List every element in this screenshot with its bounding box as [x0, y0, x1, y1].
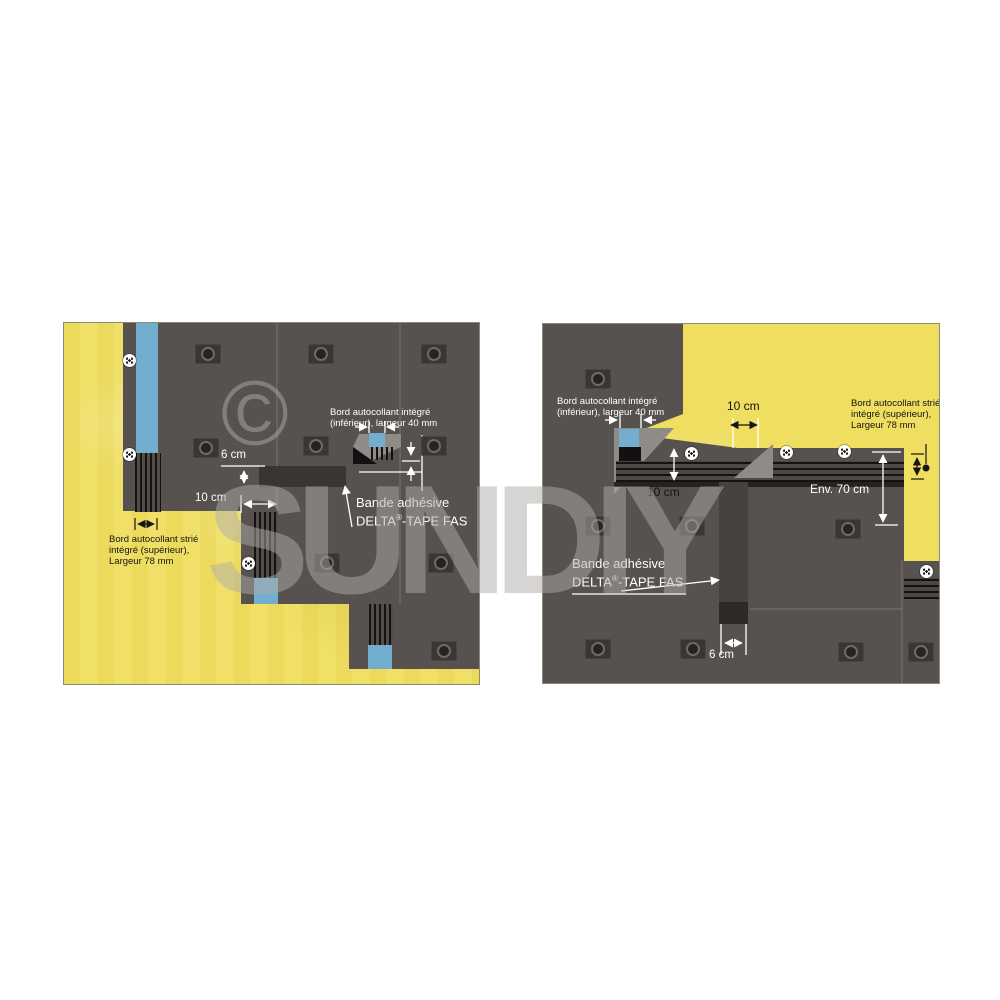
logo-ring-icon: [591, 372, 605, 386]
membrane-logo-print: [195, 344, 221, 364]
logo-ring-icon: [314, 347, 328, 361]
fastener-washer-icon: [123, 448, 136, 461]
fastener-washer-icon: [123, 354, 136, 367]
label-line: Bord autocollant strié: [851, 398, 940, 409]
membrane-logo-print: [421, 344, 447, 364]
membrane-logo-print: [308, 344, 334, 364]
logo-ring-icon: [914, 645, 928, 659]
logo-ring-icon: [201, 347, 215, 361]
blue-adhesive-strip-detail: [619, 429, 639, 447]
logo-ring-icon: [841, 522, 855, 536]
membrane-logo-print: [585, 369, 611, 389]
panel-seam: [750, 608, 902, 610]
membrane-logo-print: [838, 642, 864, 662]
membrane-logo-print: [431, 641, 457, 661]
label-line: Bord autocollant intégré: [330, 407, 437, 418]
striated-adhesive-strip: [135, 453, 161, 512]
label-line: Largeur 78 mm: [109, 556, 198, 567]
dimension-10cm-top: 10 cm: [727, 400, 760, 412]
logo-ring-icon: [427, 347, 441, 361]
label-line: Largeur 78 mm: [851, 420, 940, 431]
label-line: (inférieur), largeur 40 mm: [330, 418, 437, 429]
panel-seam: [901, 561, 903, 683]
label-lower-selfadhesive-edge: Bord autocollant intégré (inférieur), la…: [557, 396, 664, 418]
logo-ring-icon: [686, 642, 700, 656]
membrane-logo-print: [835, 519, 861, 539]
logo-ring-icon: [844, 645, 858, 659]
label-line: Bord autocollant strié: [109, 534, 198, 545]
label-line: Bord autocollant intégré: [557, 396, 664, 407]
label-line: intégré (supérieur),: [851, 409, 940, 420]
label-lower-selfadhesive-edge: Bord autocollant intégré (inférieur), la…: [330, 407, 437, 429]
striated-adhesive-band: [904, 578, 939, 599]
label-line: (inférieur), largeur 40 mm: [557, 407, 664, 418]
label-line: intégré (supérieur),: [109, 545, 198, 556]
label-upper-striated-edge: Bord autocollant strié intégré (supérieu…: [851, 398, 940, 431]
blue-adhesive-strip-detail: [369, 433, 385, 447]
delta-tape-band-end: [719, 602, 748, 624]
brand-watermark: SUNDIY: [206, 462, 714, 617]
dimension-6cm: 6 cm: [709, 649, 734, 661]
logo-ring-icon: [591, 642, 605, 656]
fastener-washer-icon: [780, 446, 793, 459]
label-upper-striated-edge: Bord autocollant strié intégré (supérieu…: [109, 534, 198, 567]
membrane-logo-print: [585, 639, 611, 659]
membrane-logo-print: [908, 642, 934, 662]
membrane-logo-print: [680, 639, 706, 659]
blue-adhesive-strip: [368, 645, 392, 669]
copyright-watermark: ©: [221, 368, 289, 460]
blue-adhesive-strip: [136, 323, 158, 453]
logo-ring-icon: [309, 439, 323, 453]
product-diagram-image: Bord autocollant intégré (inférieur), la…: [0, 0, 1000, 1000]
logo-ring-icon: [427, 439, 441, 453]
fastener-washer-icon: [838, 445, 851, 458]
dimension-env-70cm: Env. 70 cm: [810, 483, 869, 495]
fastener-washer-icon: [920, 565, 933, 578]
logo-ring-icon: [437, 644, 451, 658]
